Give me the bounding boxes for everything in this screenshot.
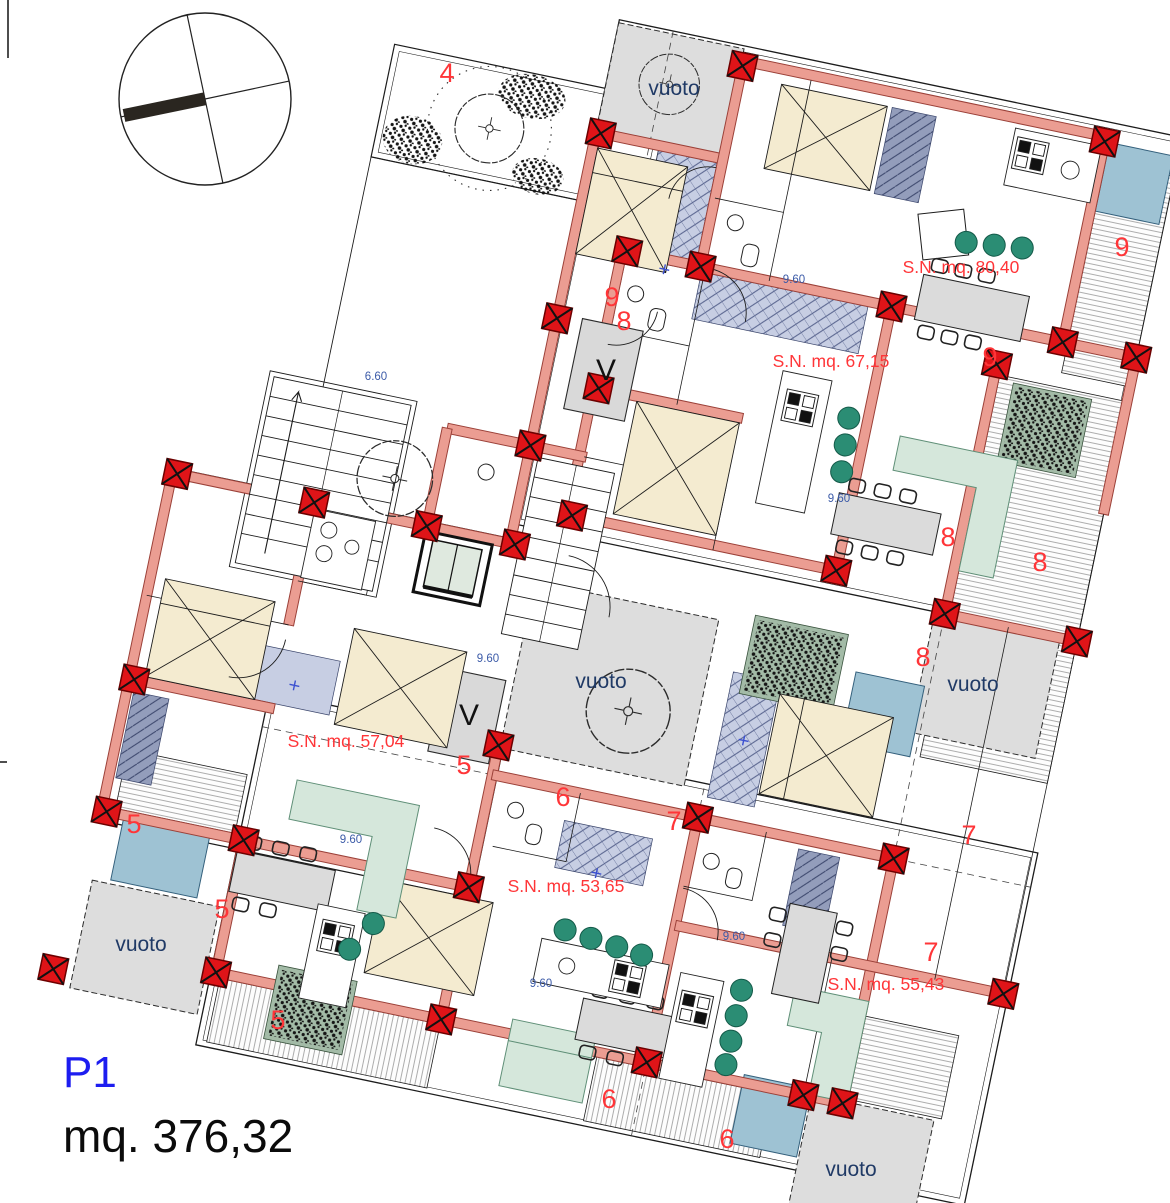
dimension-label: 9.60 [477, 653, 499, 665]
dimension-label: 6.60 [365, 371, 387, 383]
grid-label: 7 [961, 820, 976, 850]
floor-plan-svg: vuoto vuoto vuoto vuoto vuoto S.N. mq. 8… [0, 0, 1170, 1203]
elevator-shaft [413, 531, 492, 606]
grid-label: 9 [982, 342, 997, 372]
grid-label: 5 [456, 750, 471, 780]
dimension-label: 9.60 [530, 978, 552, 990]
grid-label: 7 [666, 806, 681, 836]
area-label: S.N. mq. 67,15 [773, 351, 890, 371]
area-label: S.N. mq. 80,40 [903, 257, 1020, 277]
void-label: vuoto [947, 673, 998, 696]
grid-label: 5 [214, 894, 229, 924]
void-label: vuoto [648, 77, 699, 100]
grid-label: 8 [915, 642, 930, 672]
dimension-label: 9.60 [723, 931, 745, 943]
north-compass [119, 13, 291, 185]
area-label: S.N. mq. 53,65 [508, 876, 625, 896]
grid-label: 4 [439, 58, 454, 88]
grid-label: 6 [719, 1124, 734, 1154]
dimension-label: 9.60 [340, 834, 362, 846]
grid-label: 7 [923, 937, 938, 967]
total-area-label: mq. 376,32 [63, 1110, 293, 1162]
grid-label: 5 [270, 1005, 285, 1035]
title-block: P1 mq. 376,32 [63, 1048, 293, 1162]
void-label: vuoto [575, 670, 626, 693]
floor-label: P1 [63, 1048, 117, 1097]
grid-label: 6 [555, 782, 570, 812]
void-label: vuoto [115, 933, 166, 956]
grid-label: 8 [1032, 547, 1047, 577]
dimension-label: 9.60 [783, 274, 805, 286]
area-label: S.N. mq. 57,04 [288, 731, 405, 751]
floor-plan-page: vuoto vuoto vuoto vuoto vuoto S.N. mq. 8… [0, 0, 1170, 1203]
dimension-label: 9.60 [828, 493, 850, 505]
elevator-label: V [459, 699, 479, 732]
grid-label: 5 [126, 809, 141, 839]
grid-label: 8 [616, 306, 631, 336]
grid-label: 9 [1114, 232, 1129, 262]
void-label: vuoto [825, 1158, 876, 1181]
grid-label: 6 [601, 1084, 616, 1114]
elevator-label: V [596, 354, 616, 387]
grid-label: 8 [940, 522, 955, 552]
page-corner-marks [0, 0, 8, 762]
area-label: S.N. mq. 55,43 [828, 974, 945, 994]
